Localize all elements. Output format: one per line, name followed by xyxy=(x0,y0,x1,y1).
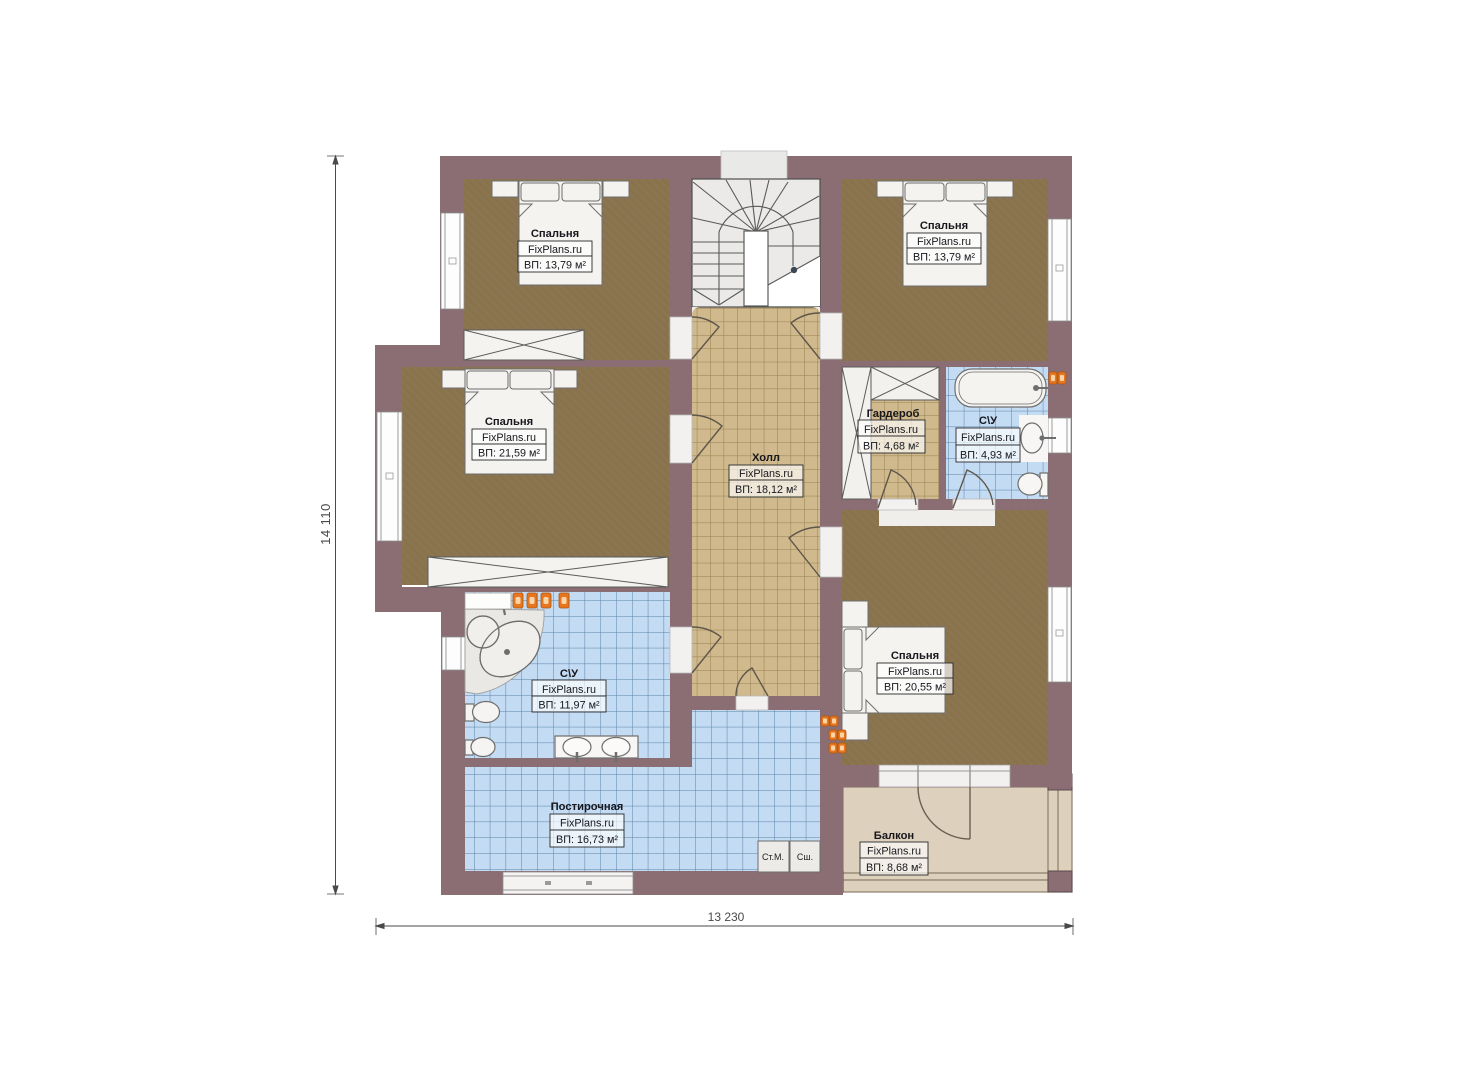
svg-text:Спальня: Спальня xyxy=(920,220,968,232)
svg-text:Гардероб: Гардероб xyxy=(867,408,920,420)
svg-text:ВП: 21,59 м²: ВП: 21,59 м² xyxy=(478,448,540,460)
svg-text:FixPlans.ru: FixPlans.ru xyxy=(917,236,971,248)
svg-text:FixPlans.ru: FixPlans.ru xyxy=(961,432,1015,444)
svg-text:С\У: С\У xyxy=(560,668,579,680)
svg-text:ВП: 8,68 м²: ВП: 8,68 м² xyxy=(866,862,922,874)
svg-text:FixPlans.ru: FixPlans.ru xyxy=(864,424,918,436)
svg-text:ВП: 16,73 м²: ВП: 16,73 м² xyxy=(556,834,618,846)
svg-text:Сш.: Сш. xyxy=(797,852,813,862)
svg-text:Спальня: Спальня xyxy=(485,416,533,428)
svg-text:13 230: 13 230 xyxy=(708,910,745,924)
svg-text:FixPlans.ru: FixPlans.ru xyxy=(482,432,536,444)
svg-text:FixPlans.ru: FixPlans.ru xyxy=(739,468,793,480)
svg-text:ВП: 13,79 м²: ВП: 13,79 м² xyxy=(913,252,975,264)
svg-text:Спальня: Спальня xyxy=(891,650,939,662)
svg-text:Ст.М.: Ст.М. xyxy=(762,852,784,862)
svg-text:ВП: 4,93 м²: ВП: 4,93 м² xyxy=(960,450,1016,462)
svg-text:FixPlans.ru: FixPlans.ru xyxy=(528,244,582,256)
svg-text:FixPlans.ru: FixPlans.ru xyxy=(867,846,921,858)
svg-text:FixPlans.ru: FixPlans.ru xyxy=(542,684,596,696)
svg-text:Холл: Холл xyxy=(752,452,780,464)
svg-text:С\У: С\У xyxy=(979,415,998,427)
svg-text:ВП: 11,97 м²: ВП: 11,97 м² xyxy=(538,700,600,712)
svg-text:14 110: 14 110 xyxy=(318,503,333,545)
svg-text:ВП: 4,68 м²: ВП: 4,68 м² xyxy=(863,441,919,453)
svg-text:Балкон: Балкон xyxy=(874,830,914,842)
svg-text:ВП: 18,12 м²: ВП: 18,12 м² xyxy=(735,484,797,496)
svg-text:ВП: 20,55 м²: ВП: 20,55 м² xyxy=(884,682,946,694)
svg-text:ВП: 13,79 м²: ВП: 13,79 м² xyxy=(524,260,586,272)
svg-text:FixPlans.ru: FixPlans.ru xyxy=(560,818,614,830)
svg-text:FixPlans.ru: FixPlans.ru xyxy=(888,666,942,678)
svg-text:Постирочная: Постирочная xyxy=(551,801,624,813)
svg-text:Спальня: Спальня xyxy=(531,228,579,240)
